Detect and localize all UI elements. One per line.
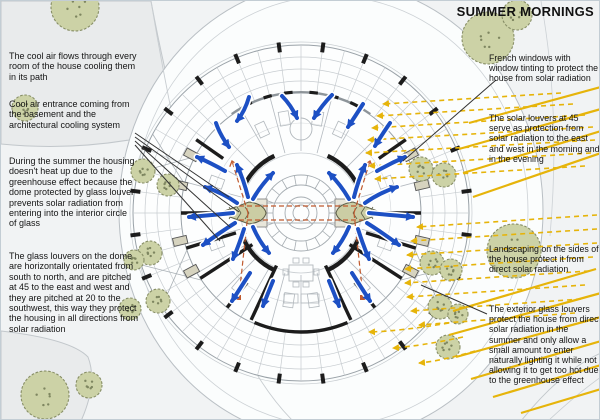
note-landscaping: Landscaping on the sides of the house pr… xyxy=(489,244,600,275)
note-exterior-louvers: The exterior glass louvers protect the h… xyxy=(489,304,600,386)
note-greenhouse-effect: During the summer the housing doesn't he… xyxy=(9,156,137,229)
note-cool-air-flows: The cool air flows through every room of… xyxy=(9,51,139,82)
note-cool-air-entrance: Cool air entrance coming from the baseme… xyxy=(9,99,137,130)
note-glass-louvers-pitch: The glass louvers on the dome are horizo… xyxy=(9,251,139,334)
summer-mornings-diagram: SUMMER MORNINGS The cool air flows throu… xyxy=(0,0,600,420)
diagram-title: SUMMER MORNINGS xyxy=(457,4,594,19)
note-french-windows: French windows with window tinting to pr… xyxy=(489,53,599,84)
note-solar-louvers-45: The solar louvers at 45 serve as protect… xyxy=(489,113,600,164)
